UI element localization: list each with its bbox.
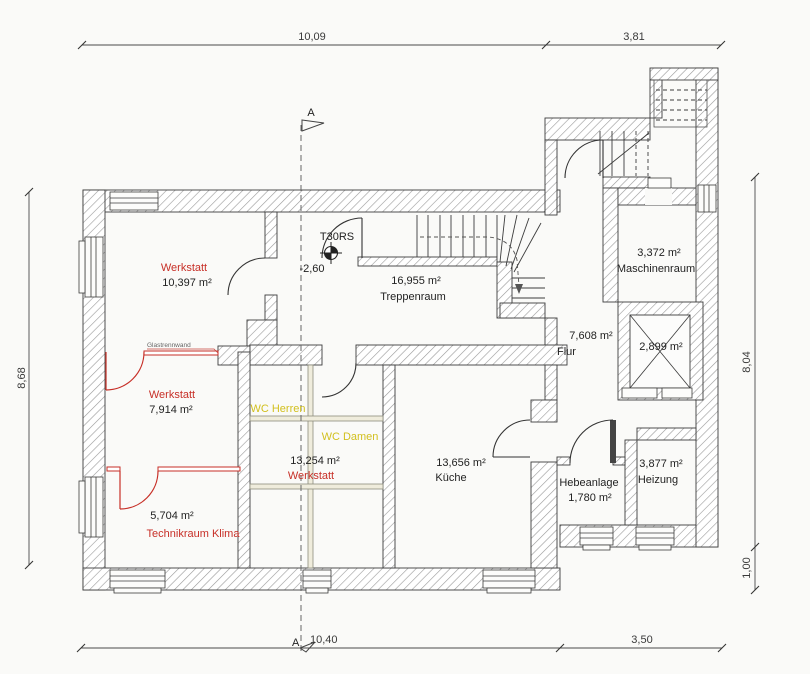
level-label: -2,60 [299, 263, 324, 275]
dimension-bottom: 10,40 3,50 [77, 634, 726, 652]
room-label-wc-herren: WC Herren [250, 403, 305, 415]
door-kueche [493, 420, 530, 457]
door-arc-wc-corridor [322, 363, 356, 397]
room-label-flur-area: 7,608 m² [569, 330, 613, 342]
fire-door-label: T30RS [320, 231, 354, 243]
dimension-left: 8,68 [16, 188, 33, 569]
dim-right-upper: 8,04 [741, 351, 753, 372]
dim-left: 8,68 [16, 367, 28, 388]
glass-wall-label: Glastrennwand [147, 342, 191, 349]
stair-walk-arrow [515, 284, 523, 294]
window-bottom-2 [303, 570, 331, 593]
maschinenraum-door [645, 178, 672, 205]
glass-partition-walls [106, 349, 240, 509]
room-label-technikraum-area: 5,704 m² [150, 510, 194, 522]
room-label-technikraum-name: Technikraum Klima [147, 528, 241, 540]
window-bottom-1 [110, 570, 165, 593]
room-label-kueche-area: 13,656 m² [436, 457, 486, 469]
room-label-heizung-name: Heizung [638, 474, 678, 486]
room-label-werkstatt2-name: Werkstatt [149, 389, 195, 401]
window-bottom-right-2 [636, 527, 674, 550]
floor-plan-sheet: A A 10,09 3,81 10,40 3,50 8,68 8,04 1,00… [0, 0, 810, 674]
floor-plan-drawing: A A 10,09 3,81 10,40 3,50 8,68 8,04 1,00… [0, 0, 810, 674]
room-label-treppenraum-area: 16,955 m² [391, 275, 441, 287]
section-label-bottom: A [292, 637, 300, 649]
dim-bottom-left: 10,40 [310, 634, 338, 646]
room-label-kueche-name: Küche [435, 472, 466, 484]
room-label-treppenraum-name: Treppenraum [380, 291, 446, 303]
room-label-werkstatt2-area: 7,914 m² [149, 404, 193, 416]
room-label-wc-damen: WC Damen [322, 431, 379, 443]
room-label-heizung-area: 3,877 m² [639, 458, 683, 470]
dimension-right: 8,04 1,00 [741, 173, 759, 594]
door-hebeanlage [570, 420, 616, 463]
window-top [110, 192, 158, 210]
window-bottom-3 [483, 570, 535, 593]
section-label-top: A [307, 107, 315, 119]
dim-top-right: 3,81 [623, 31, 644, 43]
section-marker-top-icon [302, 120, 324, 131]
window-left-lower [79, 477, 103, 537]
room-label-flur-name: Flur [557, 346, 576, 358]
room-label-hebeanlage-name: Hebeanlage [559, 477, 618, 489]
glass-door-werkstatt2 [106, 352, 144, 390]
window-left-upper [79, 237, 103, 297]
dim-bottom-right: 3,50 [631, 634, 652, 646]
door-arc-werkstatt1 [228, 258, 265, 295]
window-right [698, 185, 716, 212]
room-label-maschinenraum-area: 3,372 m² [637, 247, 681, 259]
glass-door-technikraum [120, 471, 158, 509]
window-bottom-right-1 [580, 527, 613, 550]
room-label-werkstatt3-name: Werkstatt [288, 470, 334, 482]
room-label-werkstatt1-area: 10,397 m² [162, 277, 212, 289]
room-label-maschinenraum-name: Maschinenraum [617, 263, 695, 275]
door-stair-hall [565, 140, 603, 178]
room-label-werkstatt1-name: Werkstatt [161, 262, 207, 274]
dimension-top: 10,09 3,81 [78, 31, 725, 49]
room-label-hebeanlage-area: 1,780 m² [568, 492, 612, 504]
level-benchmark-icon [320, 242, 342, 264]
room-label-werkstatt3-area: 13,254 m² [290, 455, 340, 467]
dim-right-lower: 1,00 [741, 557, 753, 578]
dim-top-left: 10,09 [298, 31, 326, 43]
room-label-aufzug-area: 2,899 m² [639, 341, 683, 353]
